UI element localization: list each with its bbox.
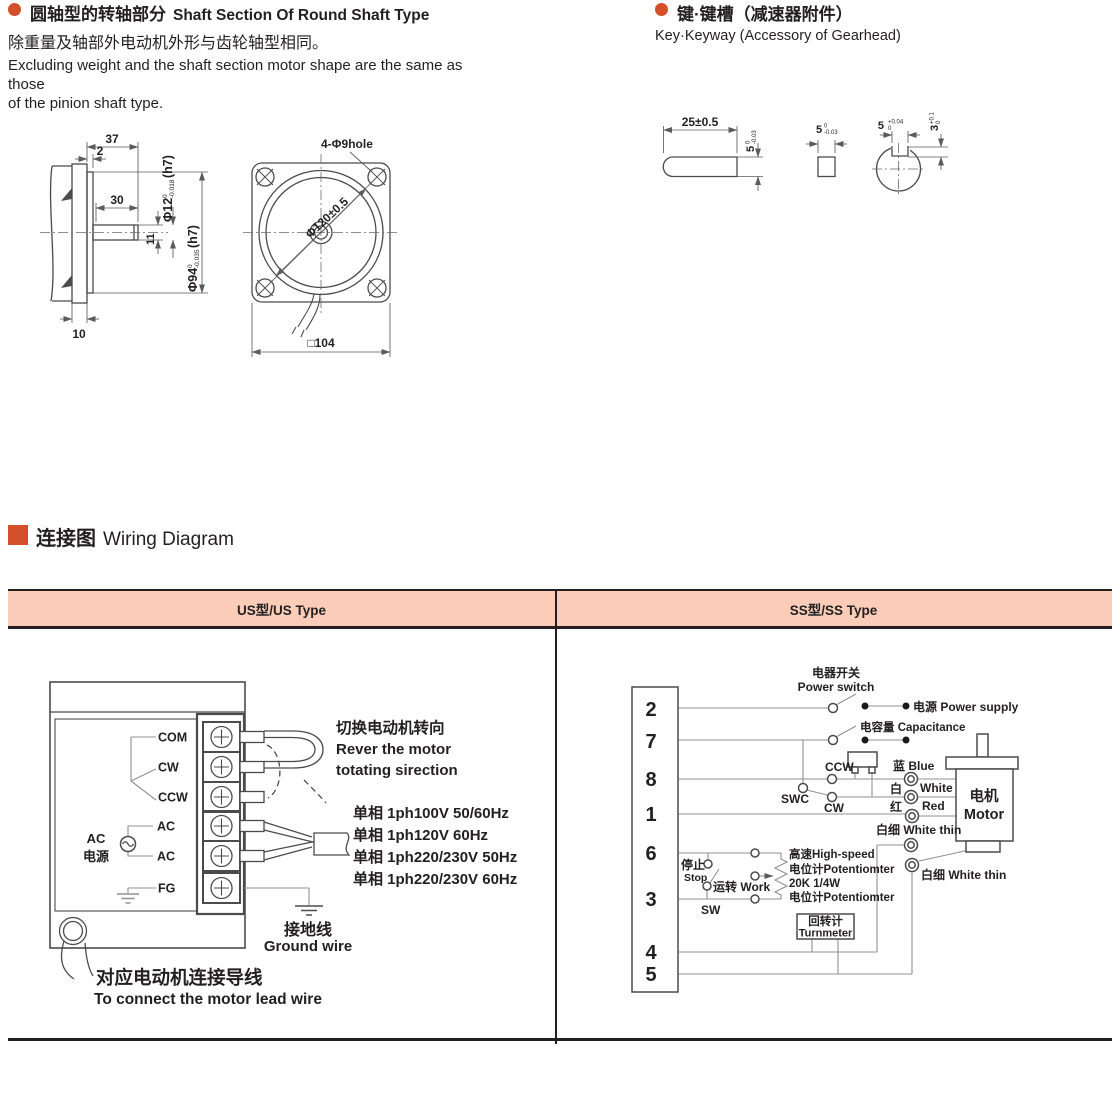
dim-square-label: □104	[307, 336, 335, 350]
ground-label-zh: 接地线	[284, 920, 332, 939]
slot-width-label: 5	[878, 120, 884, 132]
capacitor-dot-icon	[862, 737, 869, 744]
reverse-note-en2: totating sirection	[336, 762, 458, 779]
shaft-desc-zh: 除重量及轴部外电动机外形与齿轮轴型相同。	[8, 29, 478, 53]
lead-label-zh: 对应电动机连接导线	[96, 967, 263, 988]
power-switch-label-en: Power switch	[798, 680, 875, 694]
terminal-label-ac2: AC	[157, 850, 175, 864]
supply-dot-icon	[862, 703, 869, 710]
stop-label-zh: 停止	[681, 857, 705, 872]
section-square-icon	[8, 525, 28, 545]
keyway-dimensions	[880, 131, 948, 170]
capacitance-label: 电容量 Capacitance	[860, 720, 965, 734]
shaft-side-view	[51, 164, 138, 303]
ss-type-diagram: 2 7 8 1 6 3 4 5	[556, 629, 1112, 1044]
slot-depth-label: 3 +0.1 0	[929, 111, 942, 131]
red-wire-label-zh: 红	[890, 799, 902, 814]
key-title-zh: 键·键槽（减速器附件）	[677, 0, 853, 25]
svg-text:-0.035: -0.035	[194, 249, 201, 268]
voltage-line-1: 单相 1ph100V 50/60Hz	[353, 804, 509, 822]
lead-wires	[298, 294, 320, 330]
shaft-title-en: Shaft Section Of Round Shaft Type	[173, 7, 429, 25]
ac-source-line2: 电源	[83, 849, 109, 864]
column-header-ss: SS型/SS Type	[555, 591, 1112, 626]
terminal-1: 1	[645, 804, 656, 826]
key-section-header: 键·键槽（减速器附件） Key·Keyway (Accessory of Gea…	[655, 0, 1085, 44]
key-side-dimensions	[664, 126, 764, 191]
cw-label: CW	[824, 801, 845, 815]
stop-contact-icon	[704, 860, 712, 868]
capacitor-dot-icon	[903, 737, 910, 744]
shaft-title-zh: 圆轴型的转轴部分	[30, 0, 166, 25]
key-width-label: 5	[816, 124, 822, 136]
wire-connector-icons	[905, 773, 919, 872]
work-label: 运转 Work	[713, 879, 770, 894]
svg-text:Φ12: Φ12	[161, 198, 175, 222]
pot-label-1: 高速High-speed	[789, 847, 875, 861]
shaft-desc-en-line1: Excluding weight and the shaft section m…	[8, 56, 478, 94]
pot-label-3: 20K 1/4W	[789, 878, 840, 890]
blue-wire-label: 蓝 Blue	[893, 758, 935, 773]
svg-text:Φ94: Φ94	[186, 268, 200, 292]
section-bullet-icon	[655, 3, 668, 16]
terminal-6: 6	[645, 843, 656, 865]
turnmeter-label-en: Turnmeter	[799, 928, 853, 940]
terminal-label-ccw: CCW	[158, 791, 188, 805]
capacitor-pin-icon	[869, 767, 875, 773]
us-lead-lines	[61, 941, 93, 979]
terminal-5: 5	[645, 964, 656, 986]
lead-label-en: To connect the motor lead wire	[94, 991, 322, 1008]
dim-dia94-label: Φ94 0 -0.035 (h7)	[186, 225, 201, 292]
terminal-8: 8	[645, 769, 656, 791]
column-header-us: US型/US Type	[8, 591, 555, 626]
slot-width-tol-bot: 0	[888, 126, 892, 132]
supply-dot-icon	[903, 703, 910, 710]
reverse-note-en1: Rever the motor	[336, 741, 451, 758]
ccw-contact-icon	[828, 775, 837, 784]
us-internal-lines	[117, 737, 156, 903]
dim-dia12-label: Φ12 0 -0.018 (h7)	[161, 155, 176, 222]
pot-contact-icon	[751, 849, 759, 857]
dim-holes-label: 4-Φ9hole	[321, 137, 373, 151]
shaft-drawing: 37 2 30 11 Φ12 0 -0.018 (h7) Φ94 0 -0.03…	[0, 95, 450, 375]
svg-text:(h7): (h7)	[186, 225, 200, 248]
us-external-wires	[240, 731, 349, 862]
reverse-note-zh: 切换电动机转向	[336, 718, 445, 737]
svg-text:(h7): (h7)	[161, 155, 175, 178]
key-end-view	[818, 157, 835, 177]
terminal-label-cw: CW	[158, 761, 179, 775]
ss-terminal-numbers: 2 7 8 1 6 3 4 5	[645, 699, 657, 986]
svg-text:11: 11	[145, 233, 157, 245]
key-end-dimensions	[806, 140, 847, 153]
key-length-label: 25±0.5	[682, 115, 719, 129]
key-width-tol-top: 0	[824, 124, 828, 130]
svg-text:0: 0	[162, 194, 169, 198]
us-terminal-strip	[197, 714, 244, 914]
white-thin-label-2: 白细 White thin	[921, 867, 1006, 882]
voltage-line-4: 单相 1ph220/230V 60Hz	[353, 870, 517, 888]
key-drawing: 25±0.5 5 0 -0.03 5 0 -0.03	[640, 85, 990, 230]
ground-label-en: Ground wire	[264, 938, 352, 955]
wiring-title-zh: 连接图	[36, 522, 96, 551]
dim-2-label: 2	[97, 144, 104, 158]
sw-label: SW	[701, 903, 721, 917]
stop-label-en: Stop	[684, 872, 707, 884]
section-bullet-icon	[8, 3, 21, 16]
dim-30-label: 30	[110, 193, 124, 207]
red-wire-label-en: Red	[922, 799, 945, 813]
voltage-line-3: 单相 1ph220/230V 50Hz	[353, 848, 517, 866]
switch-contact-icon	[829, 704, 838, 713]
svg-text:+0.1: +0.1	[930, 111, 936, 124]
svg-text:3: 3	[929, 125, 941, 131]
voltage-line-2: 单相 1ph120V 60Hz	[353, 826, 488, 844]
pot-contact-icon	[751, 895, 759, 903]
key-title-en: Key·Keyway (Accessory of Gearhead)	[655, 28, 1085, 44]
dim-11-label: 11	[145, 233, 157, 245]
us-type-diagram: AC 电源 COM CW CCW AC AC FG	[8, 629, 555, 1044]
key-height-label: 5 0 -0.03	[745, 130, 758, 152]
dim-10-label: 10	[72, 327, 86, 341]
white-thin-label-1: 白细 White thin	[876, 822, 961, 837]
catalog-page: 圆轴型的转轴部分 Shaft Section Of Round Shaft Ty…	[0, 0, 1120, 1096]
motor-label-zh: 电机	[970, 787, 999, 805]
dim-37-label: 37	[105, 132, 119, 146]
turnmeter-label-zh: 回转计	[808, 914, 843, 928]
wiring-title-en: Wiring Diagram	[103, 529, 234, 551]
svg-text:0: 0	[746, 140, 752, 144]
ccw-label: CCW	[825, 760, 854, 774]
terminal-label-com: COM	[158, 731, 187, 745]
terminal-3: 3	[645, 889, 656, 911]
swc-label: SWC	[781, 792, 809, 806]
slot-width-tol-top: +0.04	[888, 120, 904, 126]
wiring-header: 连接图 Wiring Diagram	[8, 522, 234, 551]
svg-text:0: 0	[936, 120, 942, 124]
svg-text:-0.018: -0.018	[169, 179, 176, 198]
svg-text:5: 5	[745, 146, 757, 152]
terminal-screws	[203, 722, 240, 903]
us-ground-wire	[244, 888, 323, 915]
pot-label-2: 电位计Potentiomter	[789, 862, 895, 876]
key-side-view	[663, 157, 737, 177]
white-wire-label-en: White	[920, 781, 953, 795]
terminal-label-fg: FG	[158, 882, 175, 896]
motor-label-en: Motor	[964, 807, 1005, 823]
white-wire-label-zh: 白	[890, 781, 902, 796]
wiring-table-header: US型/US Type SS型/SS Type	[8, 589, 1112, 629]
power-supply-label: 电源 Power supply	[913, 699, 1019, 714]
terminal-4: 4	[645, 942, 657, 964]
ac-source-line1: AC	[87, 831, 106, 846]
power-switch-label-zh: 电器开关	[812, 665, 860, 680]
terminal-label-ac1: AC	[157, 820, 175, 834]
switch-contact-icon	[829, 736, 838, 745]
svg-text:-0.03: -0.03	[752, 130, 758, 144]
key-width-tol-bot: -0.03	[824, 130, 838, 136]
terminal-7: 7	[645, 731, 656, 753]
terminal-2: 2	[645, 699, 656, 721]
svg-text:0: 0	[187, 264, 194, 268]
pot-label-4: 电位计Potentiomter	[789, 890, 895, 904]
pot-contact-icon	[751, 872, 759, 880]
